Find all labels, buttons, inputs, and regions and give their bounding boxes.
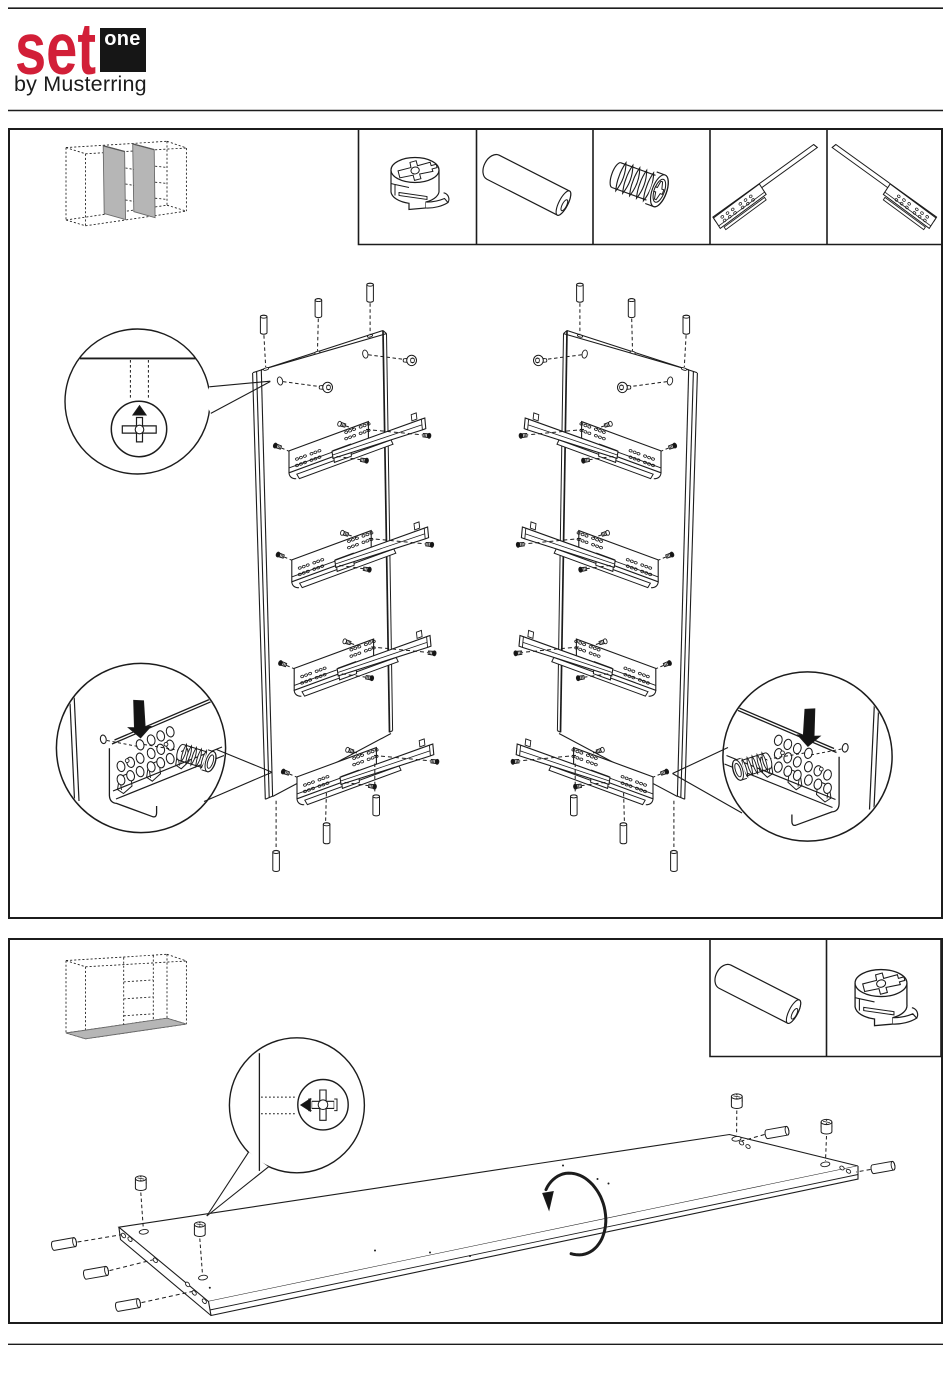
svg-text:one: one [104,28,140,50]
svg-text:by Musterring: by Musterring [14,72,147,96]
